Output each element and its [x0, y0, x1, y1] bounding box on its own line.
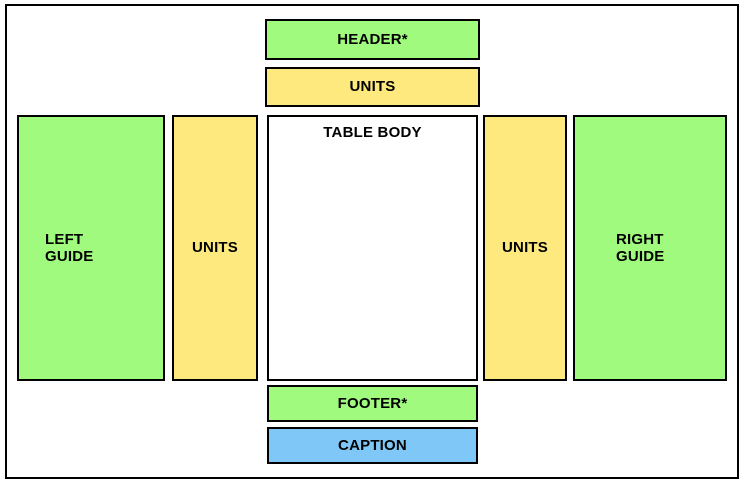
caption-label: CAPTION	[338, 437, 407, 454]
left-guide-label-line2: GUIDE	[45, 248, 94, 265]
header-box: HEADER*	[265, 19, 480, 60]
right-guide-label-line2: GUIDE	[616, 248, 665, 265]
left-guide-label: LEFT GUIDE	[45, 231, 94, 266]
right-guide-label-line1: RIGHT	[616, 231, 665, 248]
units-right-box: UNITS	[483, 115, 567, 381]
diagram-canvas: HEADER* UNITS LEFT GUIDE UNITS TABLE BOD…	[0, 0, 745, 486]
left-guide-box: LEFT GUIDE	[17, 115, 165, 381]
table-body-box: TABLE BODY	[267, 115, 478, 381]
units-top-label: UNITS	[350, 78, 396, 95]
caption-box: CAPTION	[267, 427, 478, 464]
units-left-box: UNITS	[172, 115, 258, 381]
table-body-label: TABLE BODY	[323, 124, 421, 141]
right-guide-label: RIGHT GUIDE	[616, 231, 665, 266]
footer-box: FOOTER*	[267, 385, 478, 422]
units-top-box: UNITS	[265, 67, 480, 107]
left-guide-label-line1: LEFT	[45, 231, 94, 248]
footer-label: FOOTER*	[338, 395, 408, 412]
right-guide-box: RIGHT GUIDE	[573, 115, 727, 381]
units-left-label: UNITS	[192, 239, 238, 256]
units-right-label: UNITS	[502, 239, 548, 256]
header-label: HEADER*	[337, 31, 408, 48]
